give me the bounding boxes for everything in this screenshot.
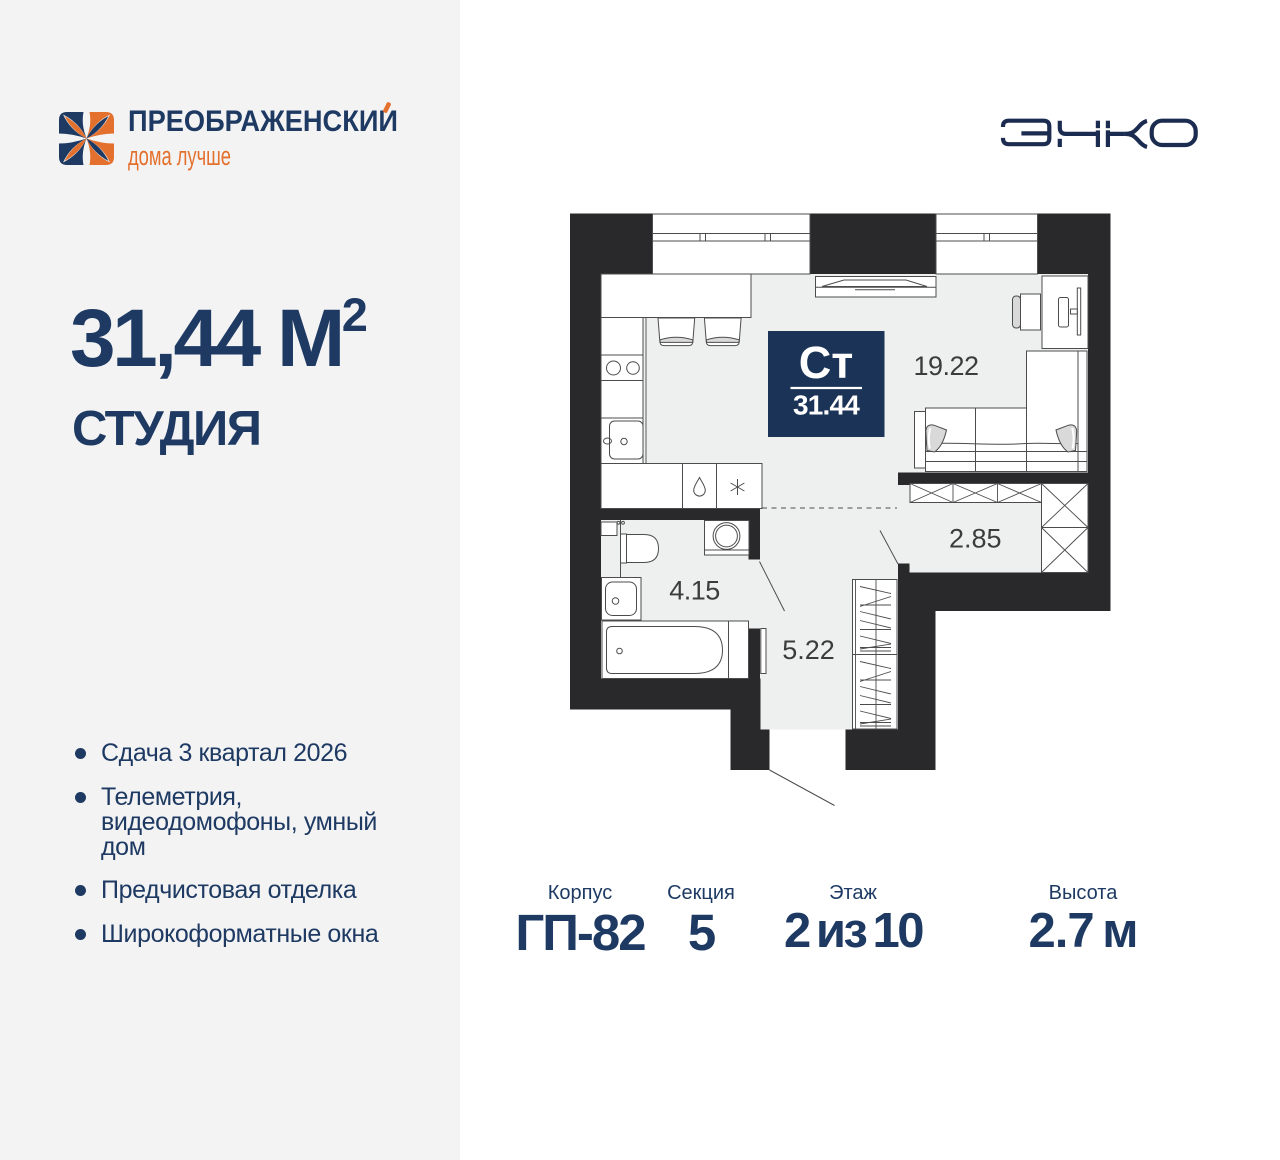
svg-text:5.22: 5.22 bbox=[782, 635, 835, 665]
svg-text:31.44: 31.44 bbox=[793, 390, 860, 421]
svg-text:4.15: 4.15 bbox=[669, 576, 720, 606]
svg-text:Ст: Ст bbox=[799, 337, 854, 388]
svg-text:2.85: 2.85 bbox=[949, 524, 1002, 554]
svg-text:19.22: 19.22 bbox=[913, 351, 978, 381]
